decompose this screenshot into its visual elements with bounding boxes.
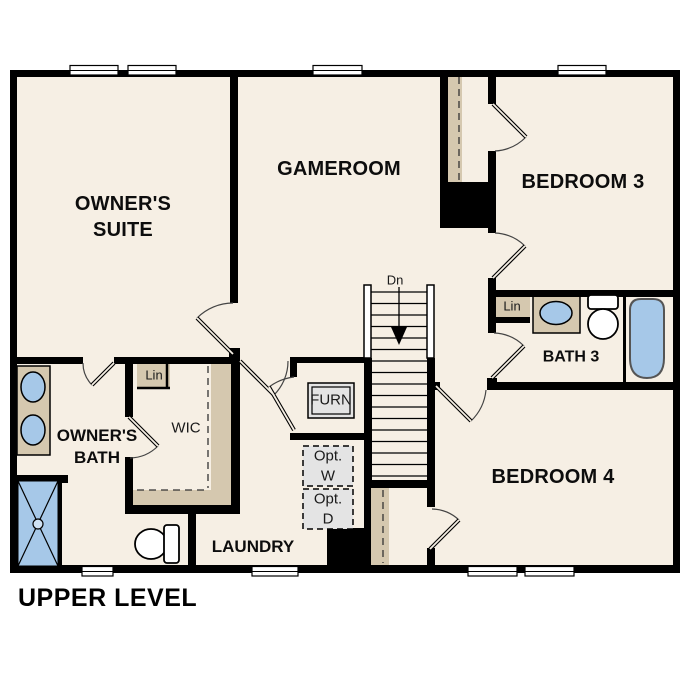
opt-dryer-box — [303, 489, 353, 529]
floor-plan: OWNER'S SUITE GAMEROOM BEDROOM 3 BATH 3 … — [0, 0, 687, 687]
bathtub — [630, 299, 664, 378]
shower — [17, 480, 59, 567]
bath3-toilet — [588, 295, 618, 339]
stair-rail-right — [427, 285, 434, 358]
furnace-unit — [308, 383, 354, 418]
opt-washer-box — [303, 446, 353, 486]
stair-rail-left — [364, 285, 371, 358]
bath3-sink — [540, 302, 572, 325]
floor-plan-drawing — [0, 0, 687, 687]
